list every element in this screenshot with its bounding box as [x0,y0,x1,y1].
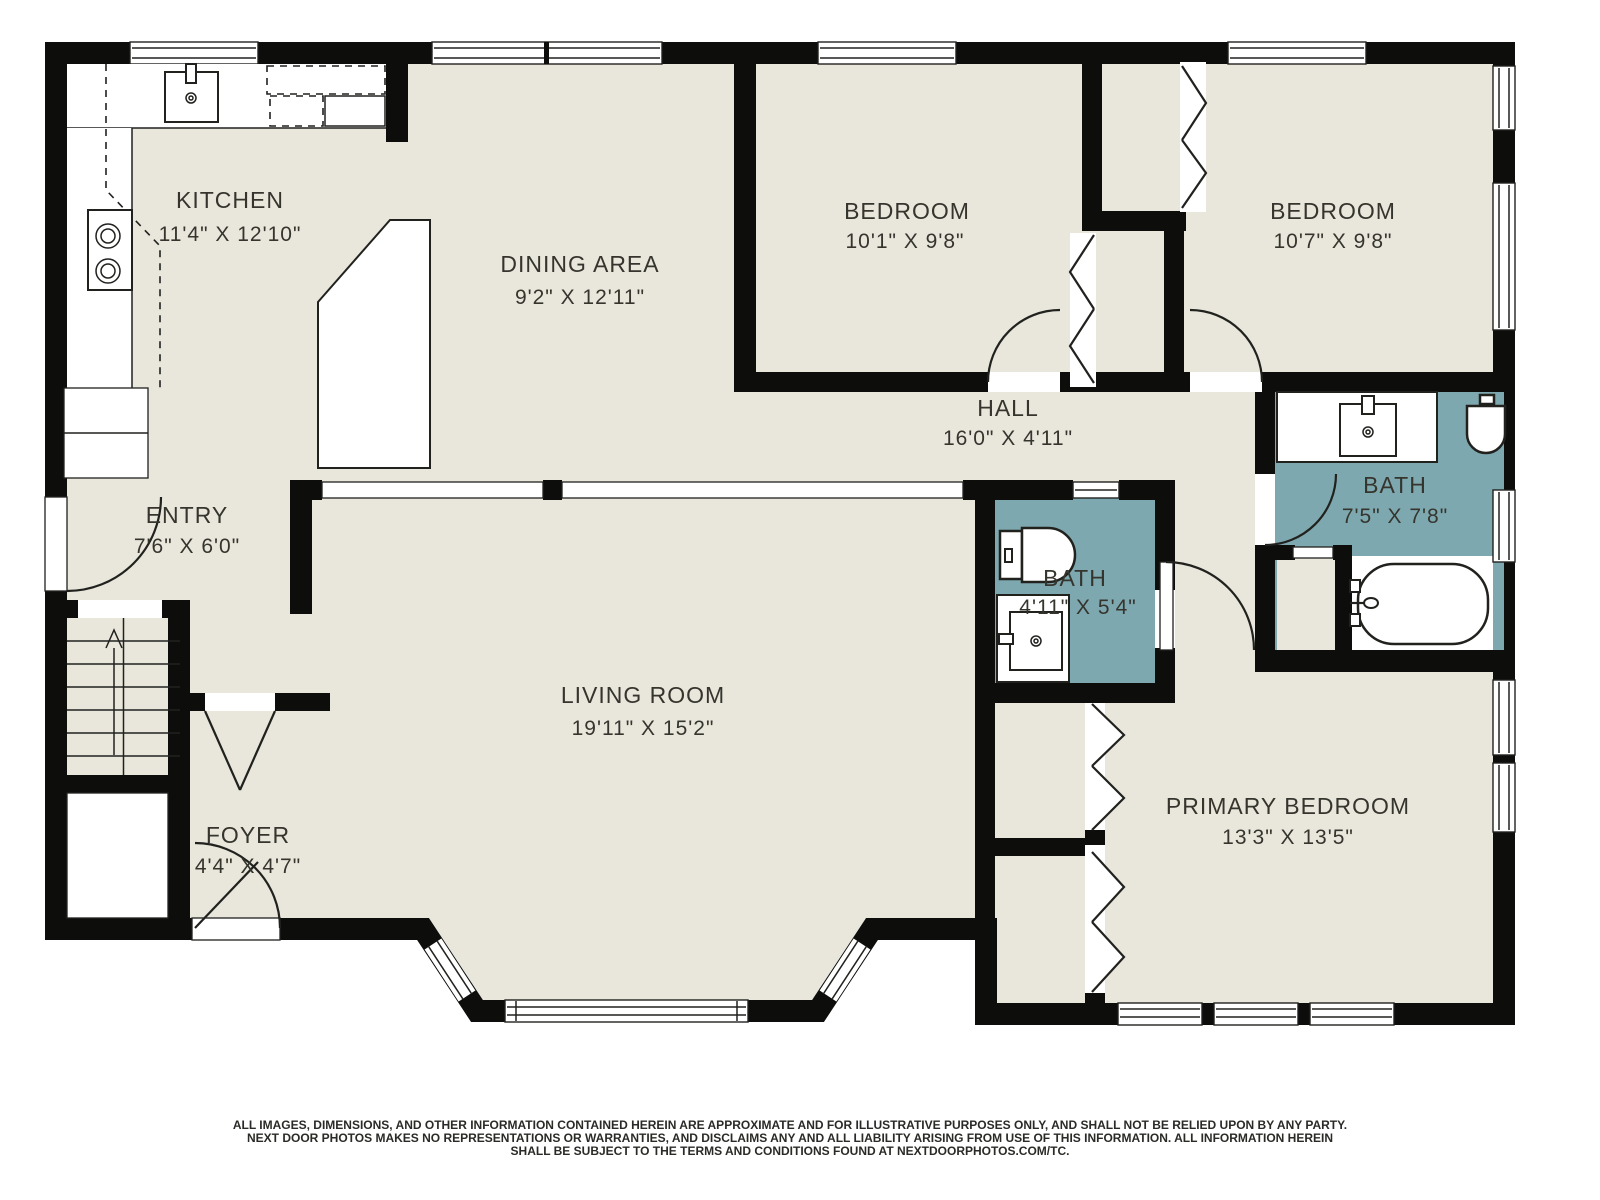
bath-lower-label: BATH [1043,565,1107,591]
primary-bottom-window-2 [1214,1003,1298,1025]
floor-plan: KITCHEN 11'4" X 12'10" DINING AREA 9'2" … [0,0,1600,1200]
kitchen-window [130,42,258,64]
kitchen-faucet-icon [186,64,196,83]
hall-living-opening [562,482,963,498]
floor-plan-page: KITCHEN 11'4" X 12'10" DINING AREA 9'2" … [0,0,1600,1200]
bath-upper-faucet-icon [1362,396,1374,414]
hall-dims: 16'0" X 4'11" [943,427,1073,450]
tub-handle-2 [1350,614,1360,626]
bedroom2-side-window-2 [1493,183,1515,330]
dining-dims: 9'2" X 12'11" [515,286,645,309]
dining-window-mullion [544,42,549,64]
bath-upper-toilet-icon [1467,406,1505,453]
entry-dims: 7'6" X 6'0" [134,535,240,558]
primary-dims: 13'3" X 13'5" [1222,826,1354,849]
primary-side-window-1 [1493,680,1515,755]
bedroom1-dims: 10'1" X 9'8" [846,230,965,253]
bedroom1-window [818,42,956,64]
hall-label: HALL [977,395,1039,421]
entry-front-door-gap [45,497,67,591]
bath-lower-dims: 4'11" X 5'4" [1019,596,1136,619]
bath-upper-window [1493,490,1515,562]
bedroom1-door-gap [988,372,1060,392]
kitchen-dims: 11'4" X 12'10" [159,223,302,246]
bath-lower-toilet-button [1005,549,1012,562]
entry-label: ENTRY [146,502,229,528]
bedroom2-door-gap [1190,372,1262,392]
primary-bottom-window-3 [1310,1003,1394,1025]
dining-living-opening [322,482,543,498]
understairs-closet [67,793,168,918]
bath-closet-opening [1293,547,1333,558]
bath-lower-sink-icon [1010,612,1062,670]
bedroom2-window [1228,42,1366,64]
bath-lower-faucet-icon [999,634,1013,644]
foyer-double-door-gap [205,693,275,711]
bath-lower-door-leaf [1160,562,1173,650]
tub-handle-1 [1350,580,1360,592]
foyer-label: FOYER [206,822,290,848]
living-label: LIVING ROOM [561,682,725,708]
bedroom1-label: BEDROOM [844,198,970,224]
dining-label: DINING AREA [500,251,659,277]
stairs-opening [78,600,162,618]
living-dims: 19'11" X 15'2" [572,717,715,740]
bedroom2-label: BEDROOM [1270,198,1396,224]
bath-closet-floor [1277,556,1335,652]
disclaimer-line-1: ALL IMAGES, DIMENSIONS, AND OTHER INFORM… [233,1118,1347,1132]
tub-spout-icon [1364,598,1378,608]
bath-upper-label: BATH [1363,472,1427,498]
primary-side-window-2 [1493,763,1515,832]
kitchen-label: KITCHEN [176,187,284,213]
primary-label: PRIMARY BEDROOM [1166,793,1410,819]
foyer-front-door-gap [192,918,280,940]
bedroom2-side-window-1 [1493,66,1515,130]
primary-bottom-window-1 [1118,1003,1202,1025]
foyer-dims: 4'4" X 4'7" [195,855,301,878]
bath-upper-door-gap [1255,474,1275,545]
bay-window-center [505,1000,748,1022]
disclaimer-line-2: NEXT DOOR PHOTOS MAKES NO REPRESENTATION… [247,1131,1333,1145]
bedroom2-dims: 10'7" X 9'8" [1274,230,1393,253]
bath-upper-toilet-button [1480,395,1494,404]
bath-upper-dims: 7'5" X 7'8" [1342,505,1448,528]
disclaimer-line-3: SHALL BE SUBJECT TO THE TERMS AND CONDIT… [511,1144,1070,1158]
